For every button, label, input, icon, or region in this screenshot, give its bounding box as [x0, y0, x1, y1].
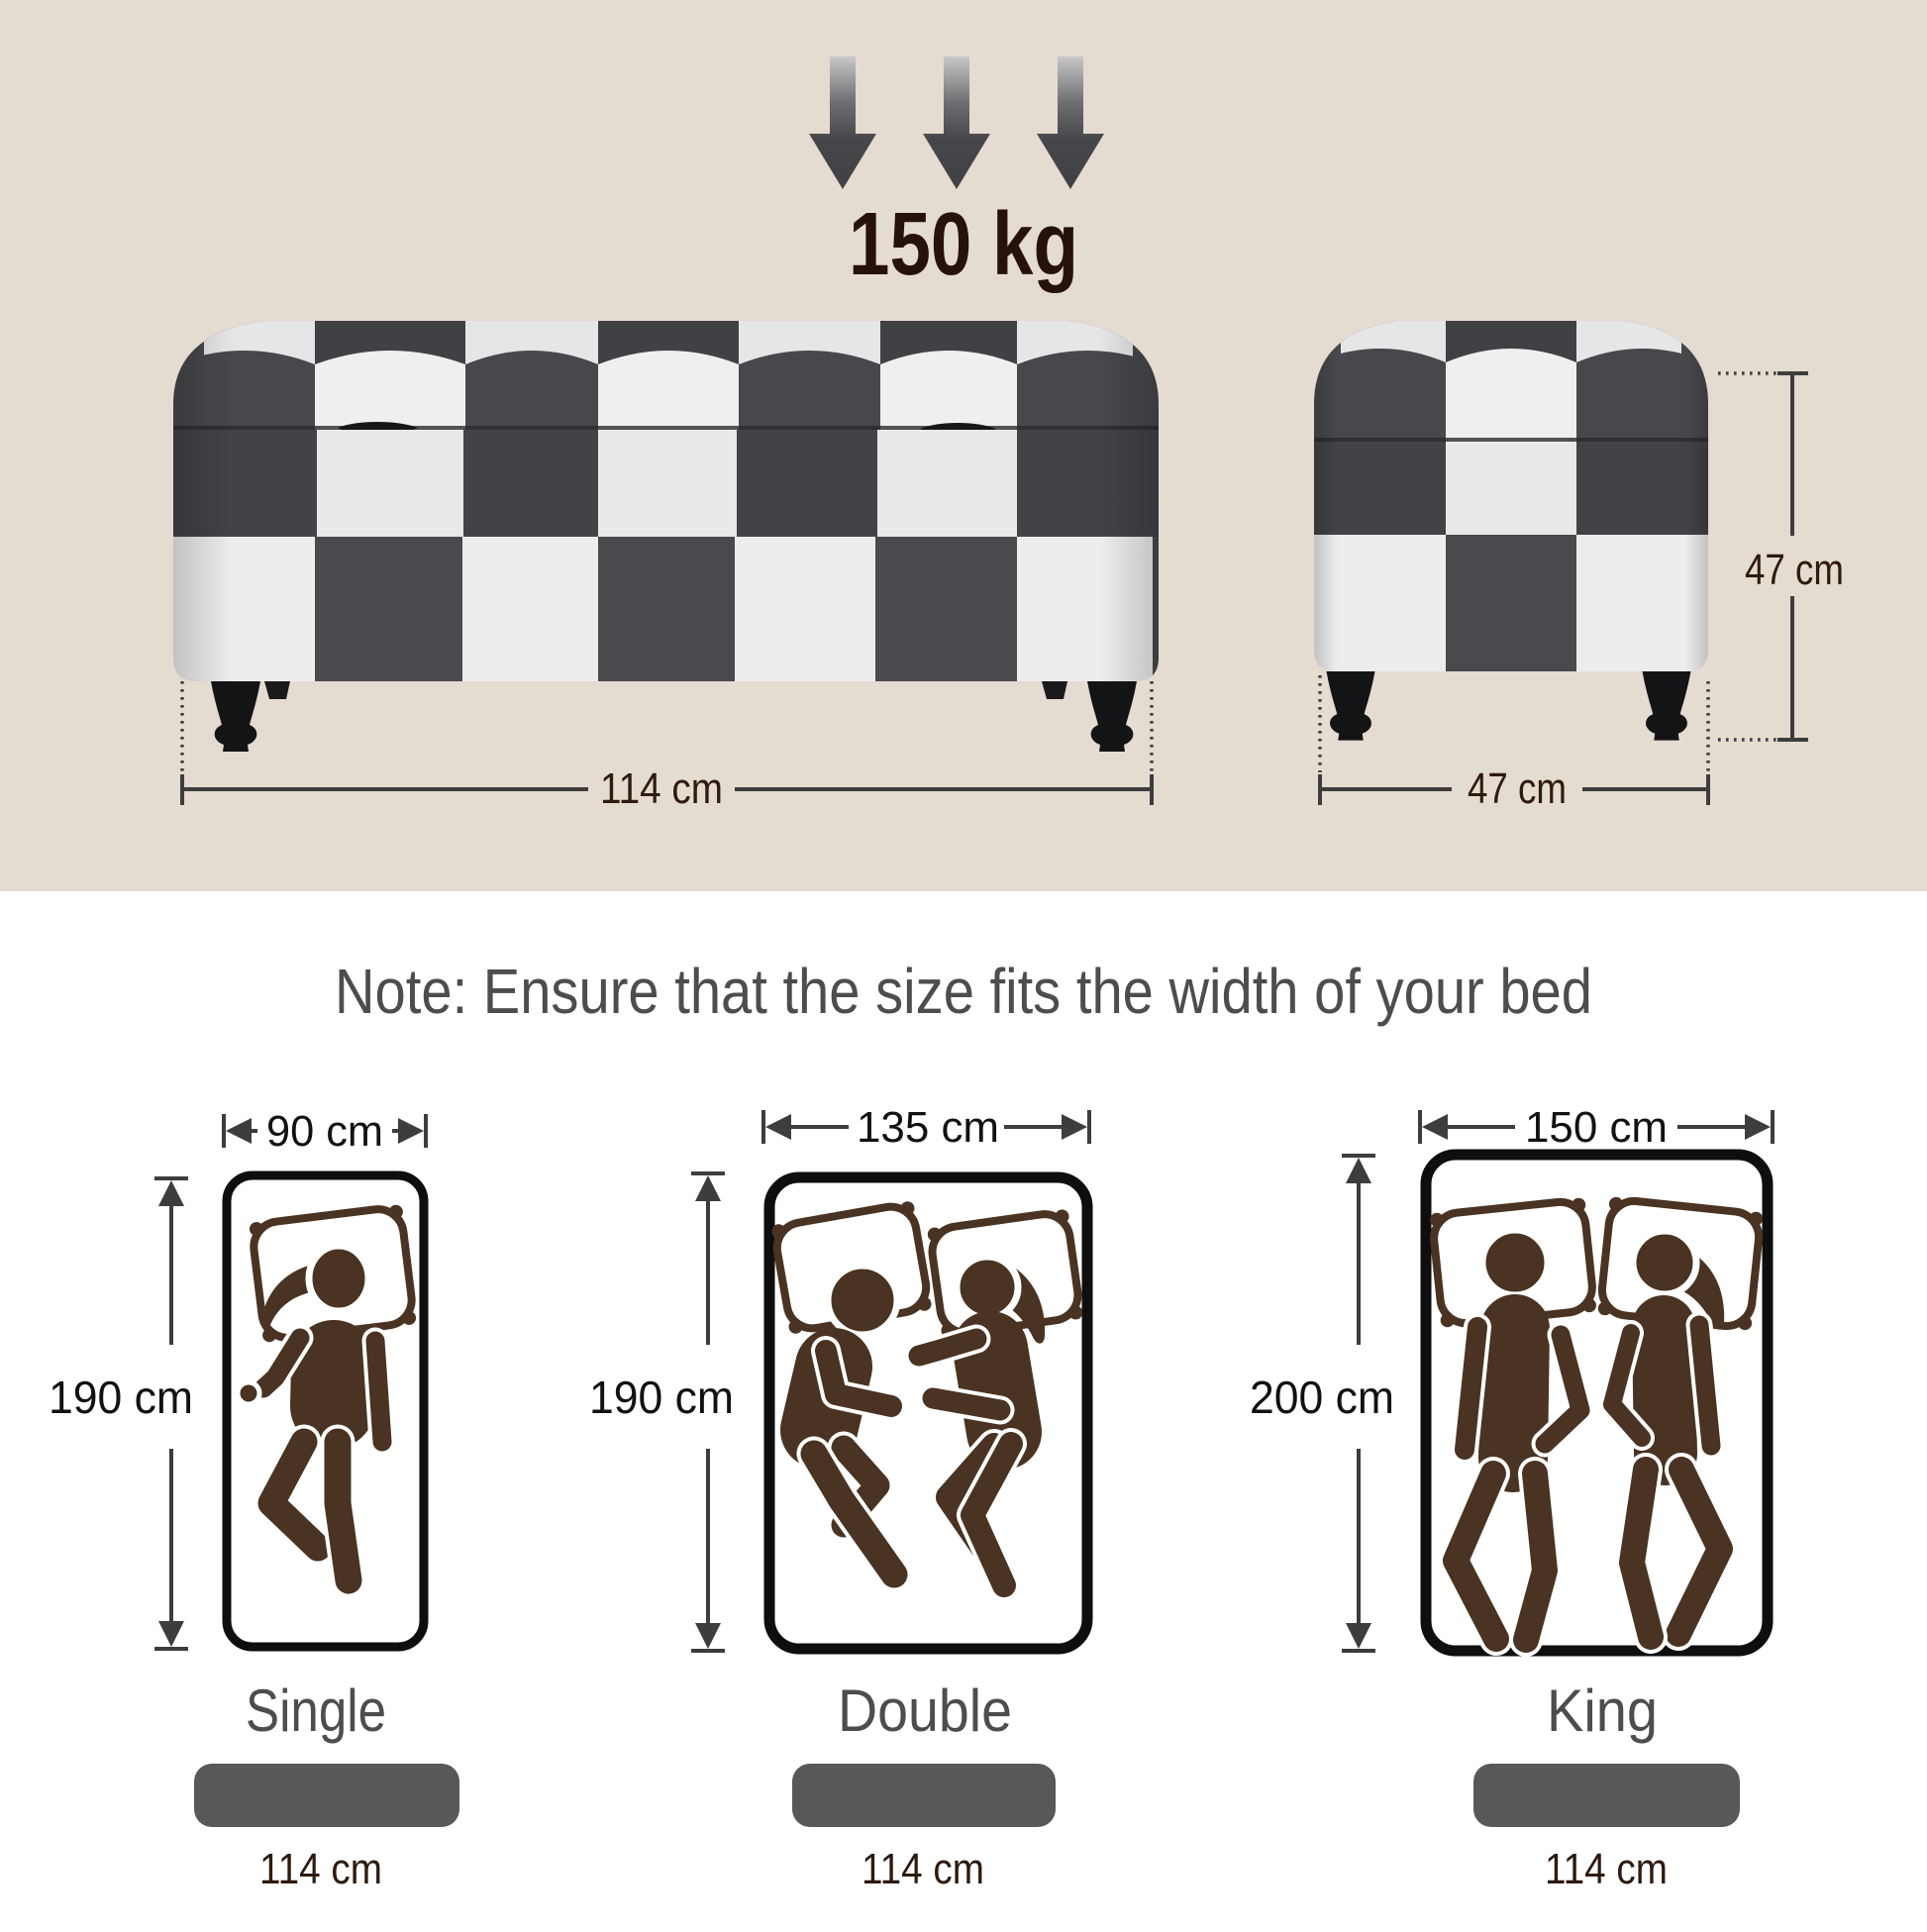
svg-text:150 kg: 150 kg	[849, 195, 1078, 294]
svg-text:Double: Double	[838, 1678, 1012, 1744]
svg-text:190 cm: 190 cm	[49, 1372, 193, 1423]
svg-text:135 cm: 135 cm	[857, 1103, 999, 1152]
svg-text:King: King	[1547, 1678, 1658, 1744]
svg-text:90 cm: 90 cm	[266, 1107, 383, 1156]
svg-text:47 cm: 47 cm	[1745, 546, 1844, 594]
svg-text:200 cm: 200 cm	[1250, 1372, 1394, 1423]
svg-text:Single: Single	[246, 1678, 386, 1744]
svg-text:114 cm: 114 cm	[862, 1845, 984, 1893]
svg-text:47 cm: 47 cm	[1468, 764, 1567, 813]
svg-text:114 cm: 114 cm	[259, 1845, 382, 1893]
svg-text:Note: Ensure that the size fit: Note: Ensure that the size fits the widt…	[335, 956, 1592, 1027]
svg-text:114 cm: 114 cm	[1545, 1845, 1668, 1893]
svg-text:114 cm: 114 cm	[600, 764, 723, 813]
svg-text:190 cm: 190 cm	[589, 1372, 734, 1423]
svg-text:150 cm: 150 cm	[1525, 1103, 1668, 1152]
